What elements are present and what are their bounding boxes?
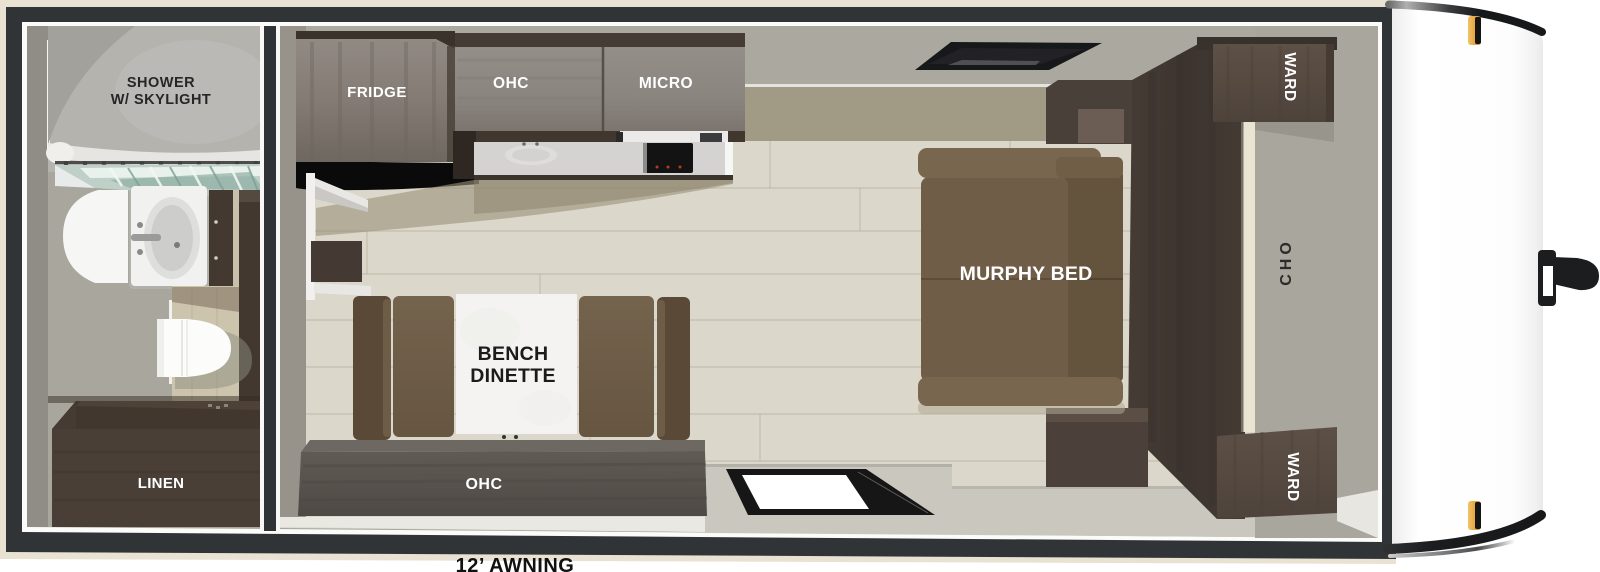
svg-text:OHC: OHC xyxy=(465,476,502,493)
svg-text:MURPHY BED: MURPHY BED xyxy=(960,263,1093,285)
svg-text:DINETTE: DINETTE xyxy=(470,365,556,387)
svg-text:12’ AWNING: 12’ AWNING xyxy=(456,555,575,572)
svg-text:WARD: WARD xyxy=(1284,452,1301,501)
svg-text:CHO: CHO xyxy=(1278,238,1295,286)
svg-text:WARD: WARD xyxy=(1281,52,1298,101)
svg-text:FRIDGE: FRIDGE xyxy=(347,84,407,101)
svg-text:W/ SKYLIGHT: W/ SKYLIGHT xyxy=(111,92,212,108)
svg-text:OHC: OHC xyxy=(493,75,529,92)
svg-text:BENCH: BENCH xyxy=(478,343,549,365)
svg-text:MICRO: MICRO xyxy=(639,75,693,92)
svg-text:LINEN: LINEN xyxy=(138,475,185,492)
svg-text:SHOWER: SHOWER xyxy=(127,75,195,91)
